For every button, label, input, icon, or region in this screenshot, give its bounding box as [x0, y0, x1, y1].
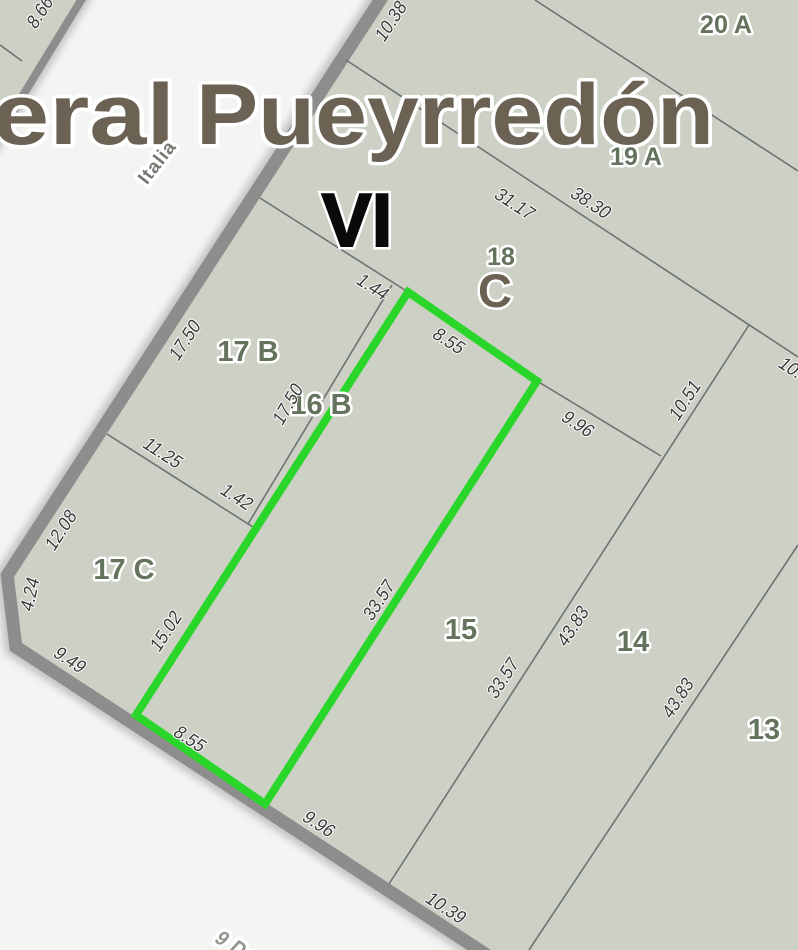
svg-text:19 A: 19 A: [610, 143, 662, 171]
svg-text:14: 14: [617, 626, 649, 658]
svg-text:13: 13: [748, 714, 780, 746]
svg-text:17 C: 17 C: [93, 554, 154, 586]
svg-text:20 A: 20 A: [700, 11, 752, 39]
svg-text:VI: VI: [322, 178, 393, 262]
svg-text:eral: eral: [0, 67, 175, 163]
svg-text:15: 15: [445, 614, 477, 646]
svg-text:C: C: [478, 264, 512, 317]
svg-text:17 B: 17 B: [217, 336, 278, 368]
svg-text:18: 18: [487, 243, 515, 271]
